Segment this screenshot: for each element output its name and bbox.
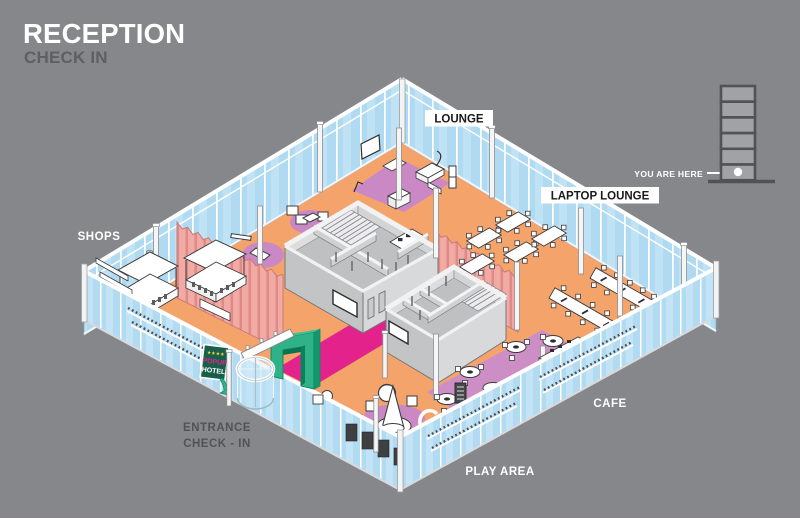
- svg-text:YOU ARE HERE: YOU ARE HERE: [634, 169, 703, 179]
- svg-text:PLAY AREA: PLAY AREA: [465, 466, 534, 478]
- svg-text:RECEPTION: RECEPTION: [23, 18, 185, 49]
- svg-text:CHECK - IN: CHECK - IN: [183, 438, 251, 450]
- svg-text:CAFE: CAFE: [593, 398, 626, 410]
- svg-text:LAPTOP LOUNGE: LAPTOP LOUNGE: [551, 191, 650, 203]
- svg-text:CHECK IN: CHECK IN: [24, 48, 108, 67]
- svg-text:SHOPS: SHOPS: [78, 231, 121, 243]
- svg-text:ENTRANCE: ENTRANCE: [183, 422, 251, 434]
- svg-text:LOUNGE: LOUNGE: [434, 114, 484, 126]
